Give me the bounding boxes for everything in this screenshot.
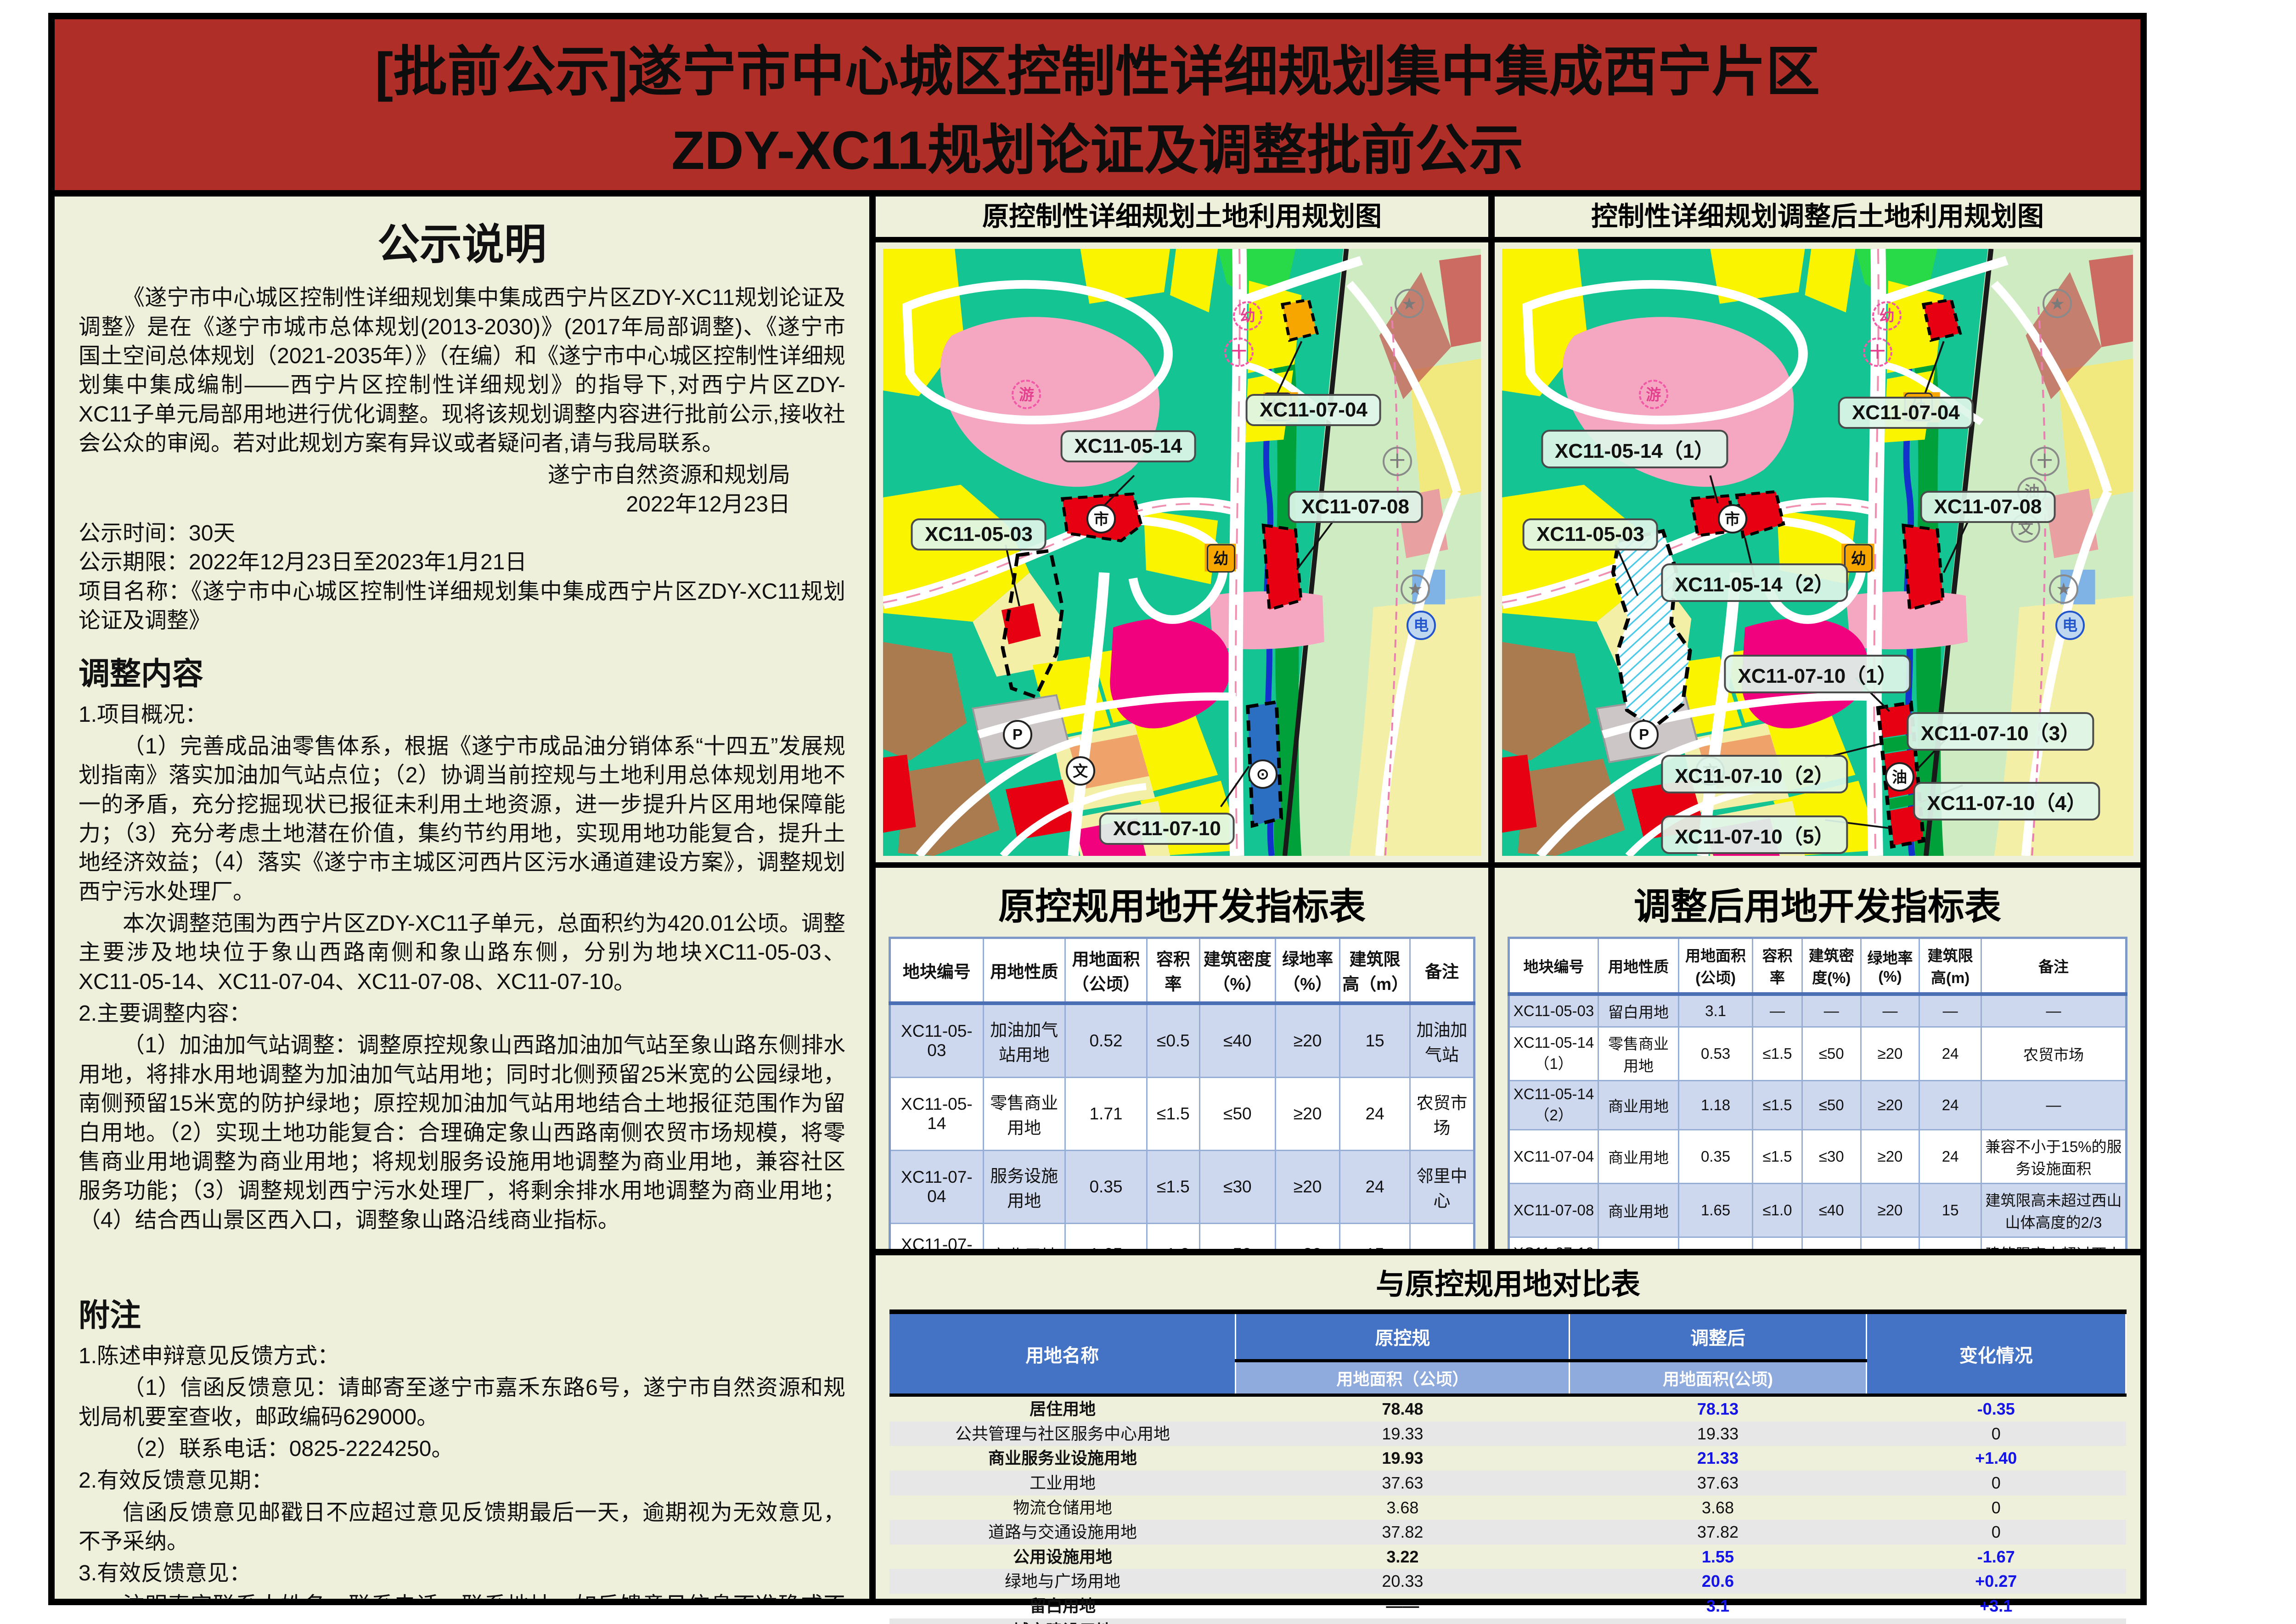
cell-original-area: 3.22 [1236,1545,1570,1569]
col-header-land-name: 用地名称 [889,1312,1236,1395]
cell-green: ≥20 [1861,1184,1919,1237]
cell-land-name: 公共管理与社区服务中心用地 [889,1422,1236,1446]
cell-adjusted-area: 37.82 [1570,1520,1866,1545]
table-row: XC11-05-14 零售商业用地 1.71 ≤1.5 ≤50 ≥20 24 农… [890,1078,1474,1151]
notice-intro-paragraph: 《遂宁市中心城区控制性详细规划集中集成西宁片区ZDY-XC11规划论证及调整》是… [79,283,845,458]
notes-paragraph: 3.有效反馈意见： [79,1559,845,1588]
col-header: 绿地率(%) [1861,938,1919,995]
original-map-title: 原控制性详细规划土地利用规划图 [876,197,1488,242]
cell-land-use: 商业用地 [1598,1081,1679,1130]
cell-land-name: 绿地与广场用地 [889,1569,1236,1594]
col-header: 容积率 [1147,938,1200,1004]
cell-original-area: 3.68 [1236,1495,1570,1520]
col-header-adjusted-group: 调整后 [1570,1312,1866,1361]
cell-parcel-id: XC11-07-04 [890,1151,984,1224]
cell-density: — [1802,994,1861,1027]
col-header: 地块编号 [1509,938,1598,995]
notes-paragraph: （1）信函反馈意见：请邮寄至遂宁市嘉禾东路6号，遂宁市自然资源和规划局机要室查收… [79,1373,845,1432]
col-header: 用地性质 [983,938,1065,1004]
col-header: 用地面积（公顷） [1065,938,1147,1004]
content-body: 公示说明 《遂宁市中心城区控制性详细规划集中集成西宁片区ZDY-XC11规划论证… [55,197,2140,1599]
page-title-banner: [批前公示]遂宁市中心城区控制性详细规划集中集成西宁片区 ZDY-XC11规划论… [55,19,2140,197]
cell-adjusted-area: 37.63 [1570,1471,1866,1495]
cell-parcel-id: XC11-07-08 [1509,1184,1598,1237]
col-header: 备注 [1410,938,1474,1004]
cell-original-area: —— [1236,1594,1570,1618]
cell-change: +1.40 [1866,1446,2126,1471]
cell-parcel-id: XC11-07-04 [1509,1130,1598,1184]
cell-remark: 农贸市场 [1981,1027,2126,1081]
cell-land-use: 零售商业用地 [1598,1027,1679,1081]
col-header: 建筑密度(%) [1802,938,1861,995]
cell-height: 24 [1340,1151,1410,1224]
cell-green: ≥20 [1276,1078,1340,1151]
cell-land-name: 商业服务业设施用地 [889,1446,1236,1471]
notes-paragraph: 信函反馈意见邮戳日不应超过意见反馈期最后一天，逾期视为无效意见，不予采纳。 [79,1498,845,1557]
cell-adjusted-area: 1.55 [1570,1545,1866,1569]
adjusted-map-title: 控制性详细规划调整后土地利用规划图 [1495,197,2140,242]
cell-remark: 建筑限高未超过西山山体高度的2/3 [1981,1237,2126,1249]
cell-parcel-id: XC11-07-10（1） [1509,1237,1598,1249]
table-row: XC11-07-08 商业用地 1.65 ≤1.0 ≤40 ≥20 15 建筑限… [1509,1184,2127,1237]
cell-area: 1.18 [1678,1081,1752,1130]
cell-original-area: 37.63 [1236,1471,1570,1495]
cell-height: 15 [1919,1184,1981,1237]
cell-parcel-id: XC11-05-03 [890,1003,984,1078]
notice-meta-line: 公示时间：30天 [79,519,845,548]
comparison-row: 道路与交通设施用地 37.82 37.82 0 [889,1520,2126,1545]
table-row: XC11-05-14（1） 零售商业用地 0.53 ≤1.5 ≤50 ≥20 2… [1509,1027,2127,1081]
cell-land-use: 商业用地 [983,1224,1065,1249]
cell-land-use: 服务设施用地 [983,1151,1065,1224]
page-title-line2: ZDY-XC11规划论证及调整批前公示 [55,112,2140,190]
comparison-row: 物流仓储用地 3.68 3.68 0 [889,1495,2126,1520]
notes-paragraph: 1.陈述申辩意见反馈方式： [79,1342,845,1371]
adjusted-table-title: 调整后用地开发指标表 [1495,868,2140,935]
cell-far: ≤1.5 [1753,1081,1802,1130]
cell-density: ≤40 [1199,1003,1275,1078]
table-row: XC11-07-10（1） 商业用地 0.24 ≤0.8 ≤40 ≥20 12 … [1509,1237,2127,1249]
cell-land-use: 留白用地 [1598,994,1679,1027]
cell-area: 0.24 [1678,1237,1752,1249]
cell-green: ≥20 [1276,1003,1340,1078]
cell-change: +3.1 [1866,1594,2126,1618]
adjusted-table-header-row: 地块编号 用地性质 用地面积 (公顷) 容积率 建筑密度(%) 绿地率(%) 建… [1509,938,2127,995]
cell-far: ≤1.5 [1753,1027,1802,1081]
col-header: 建筑密度（%） [1199,938,1275,1004]
cell-density: ≤30 [1199,1151,1275,1224]
table-row: XC11-05-14（2） 商业用地 1.18 ≤1.5 ≤50 ≥20 24 … [1509,1081,2127,1130]
comparison-row: 绿地与广场用地 20.33 20.6 +0.27 [889,1569,2126,1594]
col-header: 绿地率（%） [1276,938,1340,1004]
cell-land-name: 道路与交通设施用地 [889,1520,1236,1545]
cell-adjusted-area: 223 [1570,1618,1866,1624]
cell-change: 0 [1866,1471,2126,1495]
cell-original-area: 37.82 [1236,1520,1570,1545]
cell-green: ≥20 [1861,1130,1919,1184]
cell-area: 0.35 [1065,1151,1147,1224]
cell-original-area: 20.33 [1236,1569,1570,1594]
cell-adjusted-area: 21.33 [1570,1446,1866,1471]
comparison-row: 留白用地 —— 3.1 +3.1 [889,1594,2126,1618]
adjustment-section-title: 调整内容 [79,648,845,694]
cell-parcel-id: XC11-05-14 [890,1078,984,1151]
cell-adjusted-area: 19.33 [1570,1422,1866,1446]
adjusted-plan-map-image [1502,249,2133,856]
table-row: XC11-07-04 商业用地 0.35 ≤1.5 ≤30 ≥20 24 兼容不… [1509,1130,2127,1184]
cell-area: 1.65 [1678,1184,1752,1237]
adjusted-plan-column: 控制性详细规划调整后土地利用规划图 [1495,197,2140,1249]
cell-density: ≤30 [1802,1130,1861,1184]
cell-height: 24 [1340,1078,1410,1151]
cell-adjusted-area: 78.13 [1570,1395,1866,1422]
cell-far: ≤1.5 [1753,1130,1802,1184]
cell-change: +0.27 [1866,1569,2126,1594]
cell-original-area: 220.42 [1236,1618,1570,1624]
cell-height: 24 [1919,1081,1981,1130]
cell-remark: 兼容不小于15%的服务设施面积 [1981,1130,2126,1184]
col-header: 地块编号 [890,938,984,1004]
adjustment-paragraphs: 1.项目概况：（1）完善成品油零售体系，根据《遂宁市成品油分销体系“十四五”发展… [79,700,845,1235]
table-row: XC11-05-03 留白用地 3.1 — — — — — [1509,994,2127,1027]
page-title-line1: [批前公示]遂宁市中心城区控制性详细规划集中集成西宁片区 [55,33,2140,112]
comparison-row: 公用设施用地 3.22 1.55 -1.67 [889,1545,2126,1569]
cell-remark: — [1410,1224,1474,1249]
cell-change: +2.75 [1866,1618,2126,1624]
notes-paragraph: （2）联系电话：0825-2224250。 [79,1434,845,1463]
adjustment-paragraph: （1）完善成品油零售体系，根据《遂宁市成品油分销体系“十四五”发展规划指南》落实… [79,732,845,906]
notes-paragraph: 2.有效反馈意见期： [79,1466,845,1495]
adjusted-table-area: 地块编号 用地性质 用地面积 (公顷) 容积率 建筑密度(%) 绿地率(%) 建… [1495,935,2140,1249]
cell-land-name: 公用设施用地 [889,1545,1236,1569]
comparison-row: 城市建设用地 220.42 223 +2.75 [889,1618,2126,1624]
adjustment-paragraph: （1）加油加气站调整：调整原控规象山西路加油加气站至象山路东侧排水用地，将排水用… [79,1031,845,1235]
cell-change: -0.35 [1866,1395,2126,1422]
comparison-row: 居住用地 78.48 78.13 -0.35 [889,1395,2126,1422]
cell-change: -1.67 [1866,1545,2126,1569]
col-header: 备注 [1981,938,2126,995]
notes-section-title: 附注 [79,1290,845,1335]
cell-area: 1.71 [1065,1078,1147,1151]
col-header: 建筑限高(m) [1919,938,1981,995]
cell-height: 15 [1340,1003,1410,1078]
original-table-header-row: 地块编号 用地性质 用地面积（公顷） 容积率 建筑密度（%） 绿地率（%） 建筑… [890,938,1474,1004]
comparison-table-title: 与原控规用地对比表 [889,1261,2127,1303]
comparison-header-row1: 用地名称 原控规 调整后 变化情况 [889,1312,2126,1361]
cell-green: ≥20 [1861,1027,1919,1081]
col-header-original-group: 原控规 [1236,1312,1570,1361]
original-plan-column: 原控制性详细规划土地利用规划图 [876,197,1495,1249]
cell-parcel-id: XC11-05-14（2） [1509,1081,1598,1130]
cell-remark: — [1981,994,2126,1027]
public-notice-page: [批前公示]遂宁市中心城区控制性详细规划集中集成西宁片区 ZDY-XC11规划论… [0,0,2296,1624]
notice-meta-line: 公示期限：2022年12月23日至2023年1月21日 [79,548,845,577]
cell-density: ≤50 [1802,1027,1861,1081]
cell-far: ≤0.5 [1147,1003,1200,1078]
cell-original-area: 78.48 [1236,1395,1570,1422]
original-indicators-table: 地块编号 用地性质 用地面积（公顷） 容积率 建筑密度（%） 绿地率（%） 建筑… [889,937,1475,1249]
adjustment-paragraph: 2.主要调整内容： [79,999,845,1028]
cell-land-use: 零售商业用地 [983,1078,1065,1151]
cell-change: 0 [1866,1422,2126,1446]
adjusted-indicators-table: 地块编号 用地性质 用地面积 (公顷) 容积率 建筑密度(%) 绿地率(%) 建… [1508,937,2127,1249]
cell-remark: 加油加气站 [1410,1003,1474,1078]
cell-height: 24 [1919,1027,1981,1081]
maps-row: 原控制性详细规划土地利用规划图 [876,197,2140,1249]
notice-panel: 公示说明 《遂宁市中心城区控制性详细规划集中集成西宁片区ZDY-XC11规划论证… [55,197,876,1599]
cell-parcel-id: XC11-05-03 [1509,994,1598,1027]
table-row: XC11-05-03 加油加气站用地 0.52 ≤0.5 ≤40 ≥20 15 … [890,1003,1474,1078]
cell-land-name: 城市建设用地 [889,1618,1236,1624]
cell-far: ≤1.5 [1147,1151,1200,1224]
cell-far: ≤1.0 [1753,1184,1802,1237]
cell-green: ≥20 [1861,1081,1919,1130]
cell-height: 12 [1919,1237,1981,1249]
cell-density: ≤40 [1802,1237,1861,1249]
table-row: XC11-07-08 商业用地 1.65 ≤1.0 ≤50 ≥20 15 — [890,1224,1474,1249]
sub-header-original-area: 用地面积（公顷） [1236,1361,1570,1395]
cell-change: 0 [1866,1495,2126,1520]
cell-green: ≥20 [1276,1224,1340,1249]
cell-area: 0.35 [1678,1130,1752,1184]
notice-date: 2022年12月23日 [79,490,845,519]
cell-land-name: 工业用地 [889,1471,1236,1495]
cell-land-use: 商业用地 [1598,1130,1679,1184]
cell-height: 15 [1340,1224,1410,1249]
notes-paragraphs: 1.陈述申辩意见反馈方式：（1）信函反馈意见：请邮寄至遂宁市嘉禾东路6号，遂宁市… [79,1342,845,1599]
col-header: 用地面积 (公顷) [1678,938,1752,995]
cell-green: ≥20 [1276,1151,1340,1224]
comparison-row: 工业用地 37.63 37.63 0 [889,1471,2126,1495]
cell-adjusted-area: 20.6 [1570,1569,1866,1594]
col-header: 用地性质 [1598,938,1679,995]
cell-parcel-id: XC11-05-14（1） [1509,1027,1598,1081]
notice-signature: 遂宁市自然资源和规划局 [79,461,845,489]
cell-land-name: 留白用地 [889,1594,1236,1618]
comparison-table: 用地名称 原控规 调整后 变化情况 用地面积（公顷） 用地面积(公顷) [889,1309,2127,1624]
cell-density: ≤40 [1802,1184,1861,1237]
notice-title: 公示说明 [79,210,845,271]
col-header-change: 变化情况 [1866,1312,2126,1395]
cell-height: 24 [1919,1130,1981,1184]
cell-density: ≤50 [1199,1078,1275,1151]
original-table-area: 地块编号 用地性质 用地面积（公顷） 容积率 建筑密度（%） 绿地率（%） 建筑… [876,935,1488,1249]
cell-adjusted-area: 3.68 [1570,1495,1866,1520]
original-plan-map: 游市幼幼幼十P文⊙★十★电 XC11-07-04XC11-05-14XC11-0… [876,242,1488,868]
cell-remark: 农贸市场 [1410,1078,1474,1151]
comparison-row: 公共管理与社区服务中心用地 19.33 19.33 0 [889,1422,2126,1446]
table-row: XC11-07-04 服务设施用地 0.35 ≤1.5 ≤30 ≥20 24 邻… [890,1151,1474,1224]
cell-land-name: 居住用地 [889,1395,1236,1422]
cell-original-area: 19.33 [1236,1422,1570,1446]
cell-land-use: 加油加气站用地 [983,1003,1065,1078]
cell-density: ≤50 [1802,1081,1861,1130]
cell-far: ≤1.5 [1147,1078,1200,1151]
cell-green: ≥20 [1861,1237,1919,1249]
cell-adjusted-area: 3.1 [1570,1594,1866,1618]
cell-land-use: 商业用地 [1598,1184,1679,1237]
cell-land-use: 商业用地 [1598,1237,1679,1249]
plans-area: 原控制性详细规划土地利用规划图 [876,197,2140,1599]
original-table-title: 原控规用地开发指标表 [876,868,1488,935]
cell-area: 3.1 [1678,994,1752,1027]
cell-land-name: 物流仓储用地 [889,1495,1236,1520]
cell-remark: 邻里中心 [1410,1151,1474,1224]
notes-paragraph: 注明真实联系人姓名、联系电话、联系地址，如反馈意见信息不准确或不完整无法及时进一… [79,1591,845,1599]
col-header: 建筑限高（m） [1340,938,1410,1004]
cell-change: 0 [1866,1520,2126,1545]
notice-meta-line: 项目名称：《遂宁市中心城区控制性详细规划集中集成西宁片区ZDY-XC11规划论证… [79,577,845,635]
notice-sheet: [批前公示]遂宁市中心城区控制性详细规划集中集成西宁片区 ZDY-XC11规划论… [48,13,2147,1605]
sub-header-adjusted-area: 用地面积(公顷) [1570,1361,1866,1395]
cell-original-area: 19.93 [1236,1446,1570,1471]
cell-density: ≤50 [1199,1224,1275,1249]
cell-parcel-id: XC11-07-08 [890,1224,984,1249]
adjustment-paragraph: 本次调整范围为西宁片区ZDY-XC11子单元，总面积约为420.01公顷。调整主… [79,909,845,996]
col-header: 容积率 [1753,938,1802,995]
adjusted-plan-map: 游市幼幼幼十P文油★十油文★电 XC11-05-14（1）XC11-07-04X… [1495,242,2140,868]
cell-remark: — [1981,1081,2126,1130]
comparison-section: 与原控规用地对比表 用地名称 原控规 调整后 变化情况 用地面积（公顷） [876,1249,2140,1599]
cell-green: — [1861,994,1919,1027]
comparison-row: 商业服务业设施用地 19.93 21.33 +1.40 [889,1446,2126,1471]
adjustment-paragraph: 1.项目概况： [79,700,845,729]
cell-area: 1.65 [1065,1224,1147,1249]
cell-height: — [1919,994,1981,1027]
notice-meta: 公示时间：30天公示期限：2022年12月23日至2023年1月21日项目名称：… [79,519,845,635]
cell-far: ≤1.0 [1147,1224,1200,1249]
cell-far: ≤0.8 [1753,1237,1802,1249]
cell-area: 0.52 [1065,1003,1147,1078]
cell-remark: 建筑限高未超过西山山体高度的2/3 [1981,1184,2126,1237]
cell-far: — [1753,994,1802,1027]
original-plan-map-image [883,249,1481,856]
cell-area: 0.53 [1678,1027,1752,1081]
